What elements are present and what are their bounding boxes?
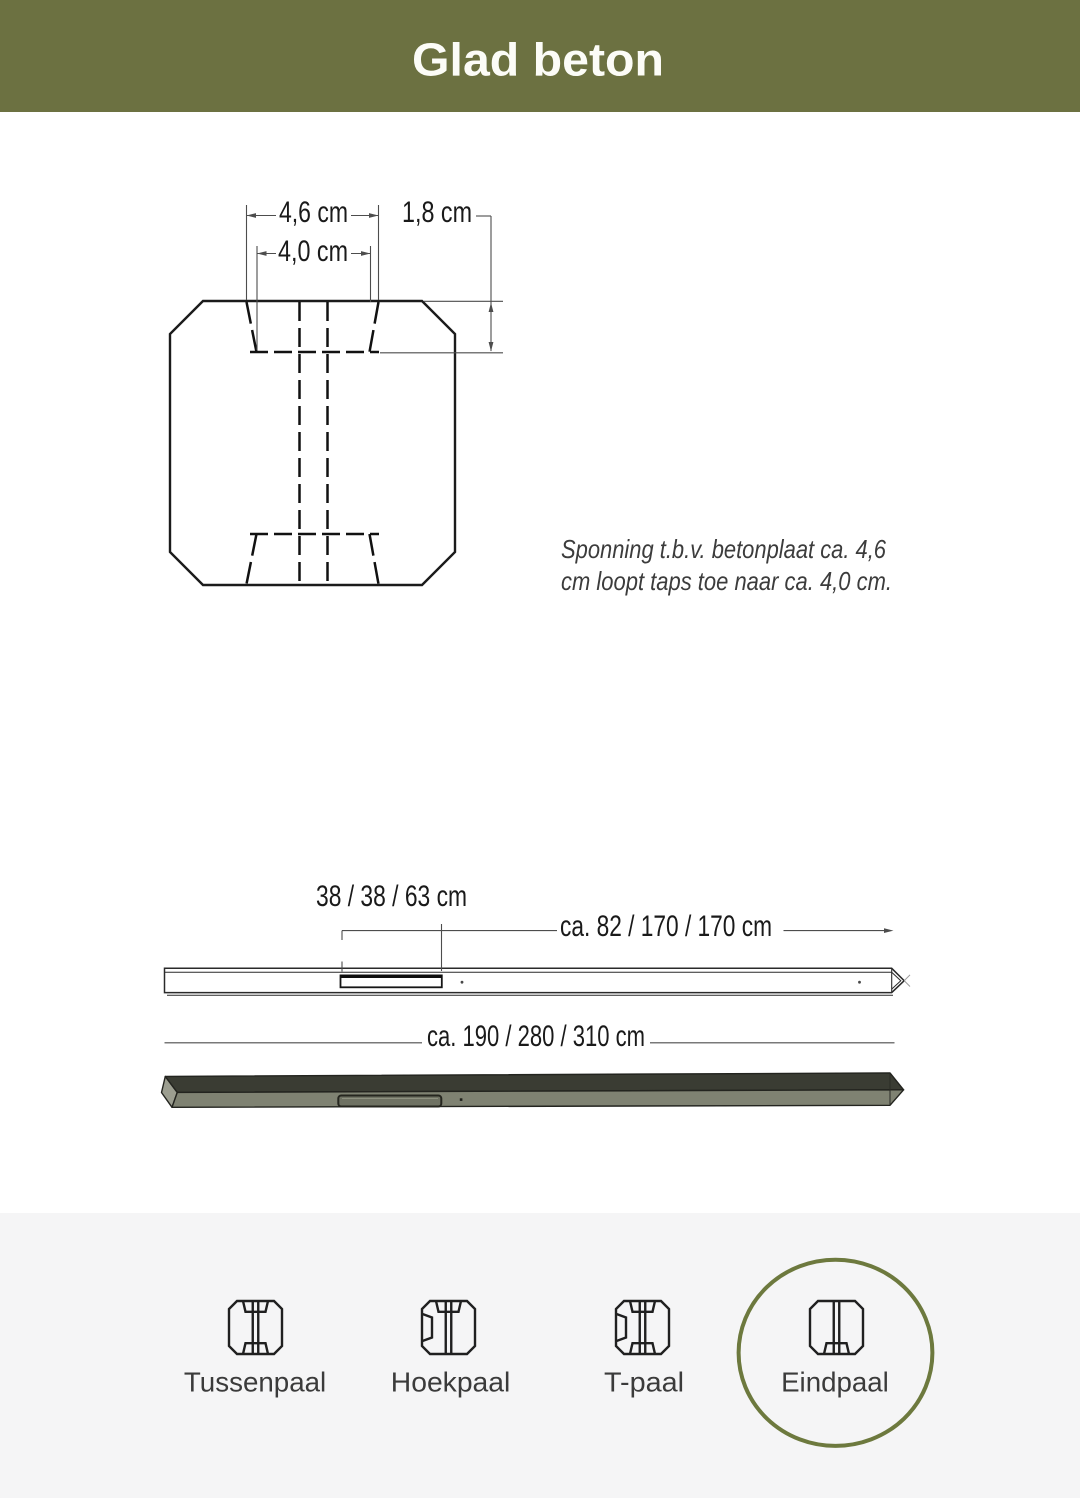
svg-text:38 / 38 / 63 cm: 38 / 38 / 63 cm: [316, 880, 467, 913]
svg-text:ca. 82 / 170 / 170 cm: ca. 82 / 170 / 170 cm: [560, 910, 772, 943]
svg-text:Glad beton: Glad beton: [412, 34, 664, 86]
svg-text:cm loopt taps toe naar ca. 4,0: cm loopt taps toe naar ca. 4,0 cm.: [561, 566, 892, 596]
svg-text:4,6 cm: 4,6 cm: [279, 196, 348, 229]
svg-text:Hoekpaal: Hoekpaal: [391, 1367, 511, 1398]
svg-text:T-paal: T-paal: [604, 1367, 684, 1398]
svg-text:ca. 190 / 280 / 310 cm: ca. 190 / 280 / 310 cm: [427, 1020, 645, 1053]
svg-text:4,0 cm: 4,0 cm: [278, 235, 348, 268]
svg-text:Eindpaal: Eindpaal: [781, 1367, 889, 1398]
svg-text:Sponning t.b.v. betonplaat ca.: Sponning t.b.v. betonplaat ca. 4,6: [561, 534, 886, 564]
svg-text:Tussenpaal: Tussenpaal: [184, 1367, 326, 1398]
svg-text:1,8 cm: 1,8 cm: [402, 196, 472, 229]
